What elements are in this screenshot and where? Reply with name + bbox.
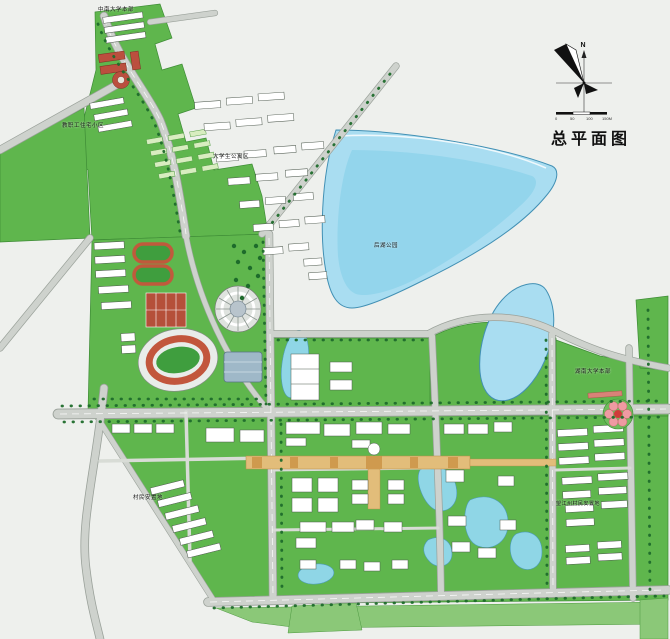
scale-tick-50: 50 — [570, 116, 575, 121]
tennis-courts — [146, 293, 186, 327]
master-plan-map: N 0 50 100 150M 中南大学本部 教职工住宅小区 大学生公寓区 后湖… — [0, 0, 670, 639]
scale-tick-0: 0 — [555, 116, 558, 121]
north-label: N — [581, 42, 586, 49]
scale-tick-100: 100 — [586, 116, 593, 121]
plan-title: 总平面图 — [551, 125, 631, 149]
label-villager-resettlement: 村民安置地 — [133, 493, 163, 501]
scale-tick-150m: 150M — [602, 116, 612, 121]
houhu-lake — [322, 130, 556, 308]
label-student-apartments: 大学生公寓区 — [213, 152, 249, 160]
scale-bar: 0 50 100 150M — [555, 112, 612, 121]
label-east-direction: 湖南大学本部 — [575, 367, 611, 375]
label-top-campus: 中南大学本部 — [98, 5, 134, 13]
label-west-residential: 教职工住宅小区 — [62, 121, 104, 129]
campus-green-areas — [0, 4, 668, 639]
north-arrow: N — [554, 42, 612, 112]
gymnasium — [215, 286, 261, 332]
natatorium — [224, 352, 262, 382]
label-park: 后湖公园 — [374, 241, 398, 249]
label-east-resettlement: 望江州村民安置地 — [556, 500, 600, 507]
site-plan-canvas: N 0 50 100 150M — [0, 0, 670, 639]
